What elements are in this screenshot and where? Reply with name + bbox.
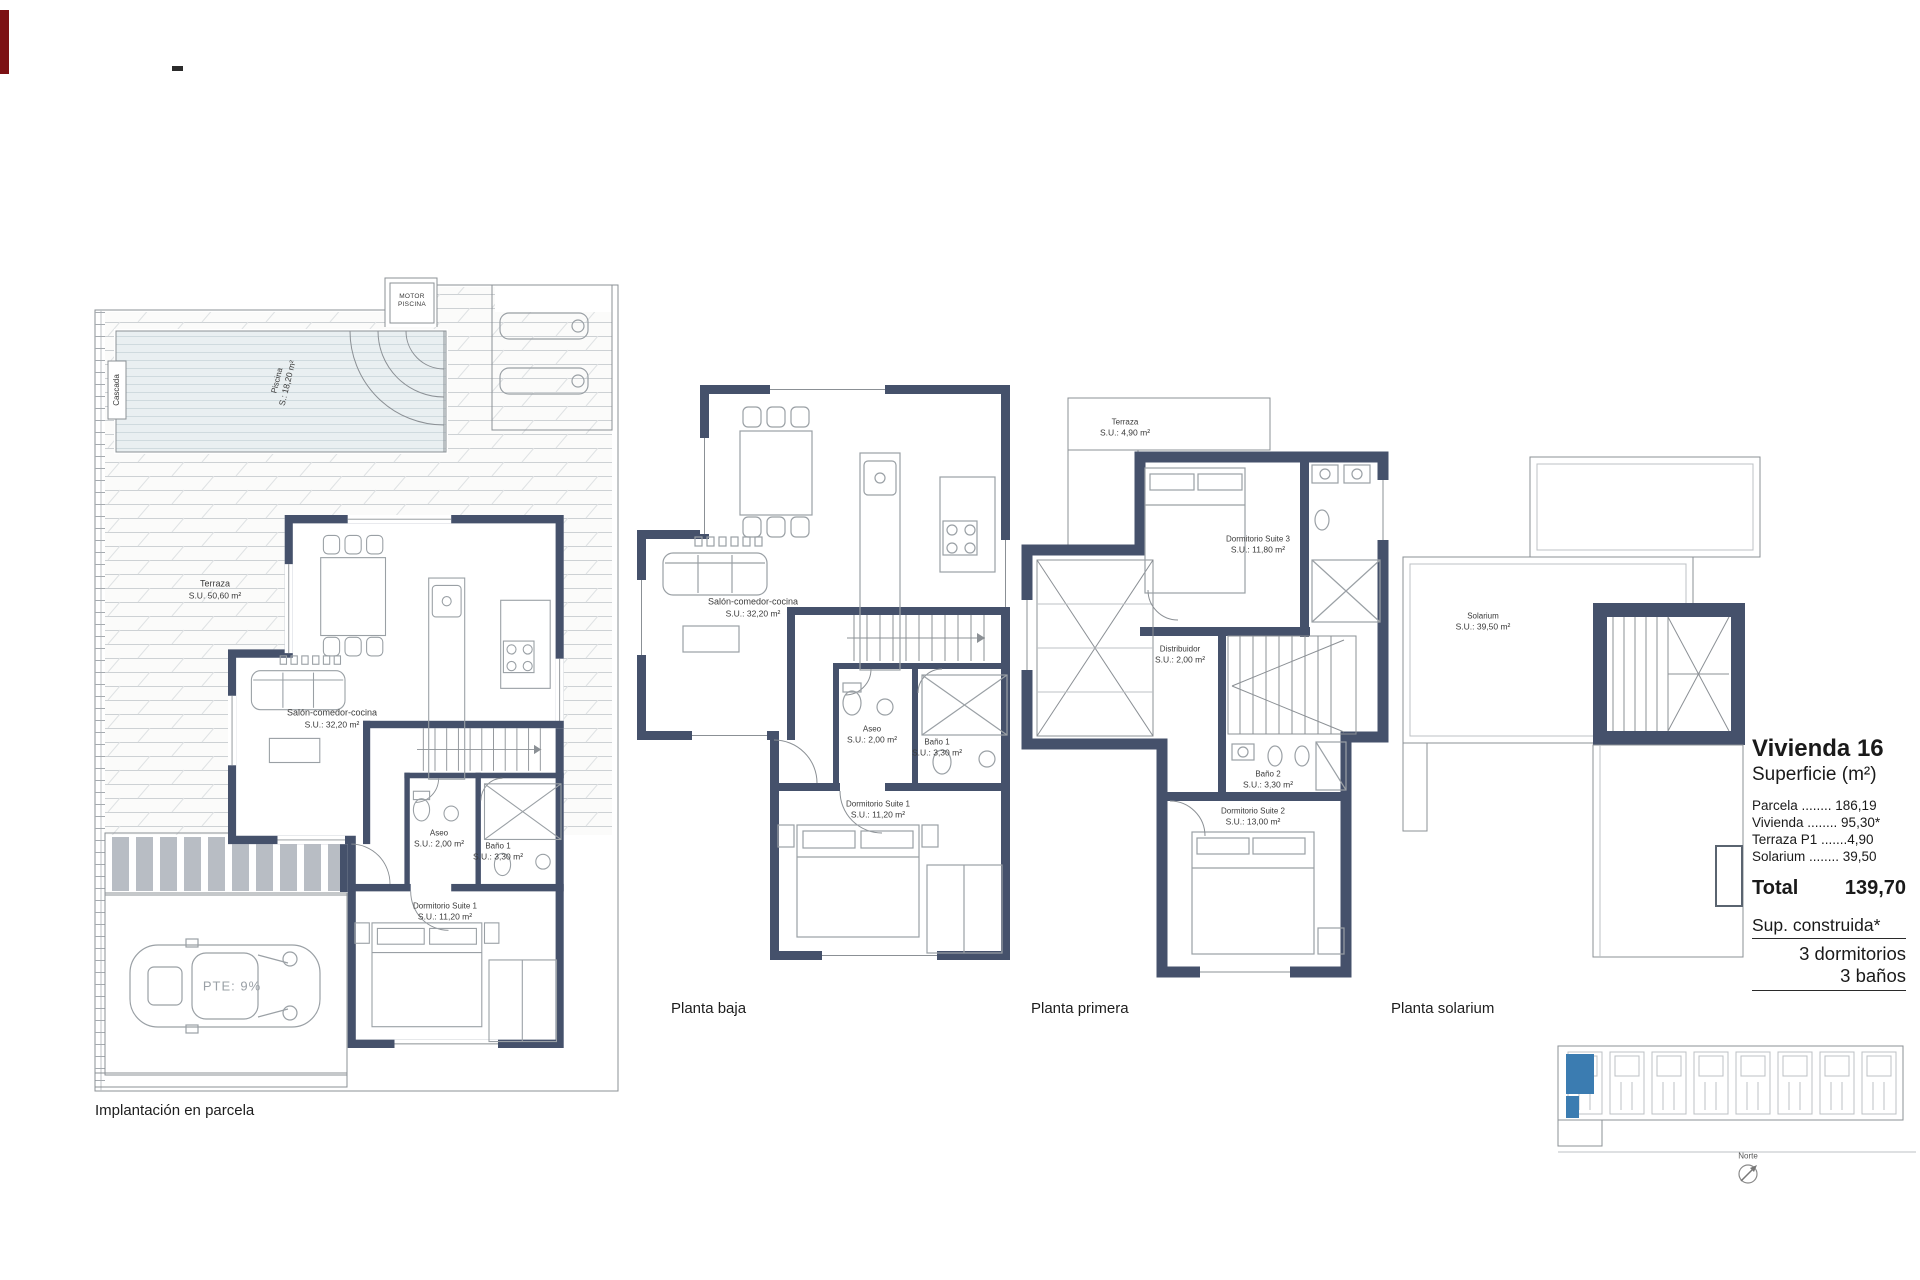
- room-name: MOTOR: [398, 293, 426, 301]
- room-area: S.U.: 32,20 m²: [708, 608, 798, 619]
- room-area: S.U. 50,60 m²: [189, 590, 241, 601]
- label-bano2: Baño 2 S.U.: 3,30 m²: [1243, 769, 1293, 790]
- label-cascada: Cascada: [112, 374, 122, 406]
- room-area: S.U.: 11,80 m²: [1226, 545, 1290, 556]
- room-name: Cascada: [112, 374, 122, 406]
- label-motor-piscina: MOTOR PISCINA: [398, 293, 426, 309]
- room-name: Distribuidor: [1155, 644, 1205, 654]
- caption-planta-baja: Planta baja: [671, 1000, 746, 1017]
- room-name: Aseo: [414, 828, 464, 838]
- floorplan-drawing: .w{fill:#45516b;stroke:none} .pw{fill:#f…: [0, 0, 1920, 1280]
- unit-subtitle: Superficie (m²): [1752, 764, 1906, 786]
- room-name: Salón-comedor-cocina: [287, 708, 377, 720]
- label-bano1-impl: Baño 1 S.U.: 3,30 m²: [473, 841, 523, 862]
- room-area: S.U.: 32,20 m²: [287, 719, 377, 730]
- room-area: S.U.: 2,00 m²: [1155, 655, 1205, 666]
- label-salon-impl: Salón-comedor-cocina S.U.: 32,20 m²: [287, 708, 377, 731]
- bathrooms-count: 3 baños: [1752, 965, 1906, 991]
- site-overview-strip: [1558, 1046, 1916, 1183]
- plan-planta-solarium: [1403, 457, 1760, 957]
- caption-planta-primera: Planta primera: [1031, 1000, 1129, 1017]
- surface-row-solarium: Solarium ........ 39,50: [1752, 848, 1906, 865]
- room-area: S.U.: 11,20 m²: [846, 810, 910, 821]
- room-name: Baño 2: [1243, 769, 1293, 779]
- north-compass-icon: [1739, 1165, 1757, 1183]
- room-area: S.U.: 2,00 m²: [847, 735, 897, 746]
- label-terraza-p1: Terraza S.U.: 4,90 m²: [1100, 417, 1150, 438]
- solarium-lower-terrace: [1593, 745, 1743, 957]
- label-aseo-impl: Aseo S.U.: 2,00 m²: [414, 828, 464, 849]
- room-name: PISCINA: [398, 301, 426, 309]
- surface-rows: Parcela ........ 186,19 Vivienda .......…: [1752, 797, 1906, 865]
- label-solarium: Solarium S.U.: 39,50 m²: [1456, 611, 1511, 632]
- highlighted-unit: [1566, 1054, 1594, 1094]
- room-name: Dormitorio Suite 1: [413, 901, 477, 911]
- room-area: S.U.: 4,90 m²: [1100, 428, 1150, 439]
- label-terraza-50: Terraza S.U. 50,60 m²: [189, 579, 241, 602]
- terraza-p1: [1068, 398, 1270, 450]
- room-area: S.U.: 39,50 m²: [1456, 622, 1511, 633]
- stairwell-solarium: [1593, 603, 1745, 745]
- room-name: Aseo: [847, 724, 897, 734]
- label-salon-pb: Salón-comedor-cocina S.U.: 32,20 m²: [708, 597, 798, 620]
- brochure-page: .w{fill:#45516b;stroke:none} .pw{fill:#f…: [0, 0, 1920, 1280]
- room-name: Terraza: [189, 579, 241, 591]
- room-name: Baño 1: [912, 737, 962, 747]
- unit-info-panel: Vivienda 16 Superficie (m²) Parcela ....…: [1752, 736, 1906, 991]
- caption-planta-solarium: Planta solarium: [1391, 1000, 1494, 1017]
- room-area: S.U.: 11,20 m²: [413, 912, 477, 923]
- label-dorm3: Dormitorio Suite 3 S.U.: 11,80 m²: [1226, 534, 1290, 555]
- parcel-fence: [95, 310, 105, 1091]
- label-distribuidor: Distribuidor S.U.: 2,00 m²: [1155, 644, 1205, 665]
- total-label: Total: [1752, 877, 1798, 900]
- total-value: 139,70: [1845, 877, 1906, 900]
- label-dorm1-impl: Dormitorio Suite 1 S.U.: 11,20 m²: [413, 901, 477, 922]
- surface-total: Total 139,70: [1752, 877, 1906, 900]
- caption-implantacion: Implantación en parcela: [95, 1102, 254, 1119]
- plan-planta-primera: [1021, 398, 1389, 978]
- room-area: S.U.: 3,30 m²: [912, 748, 962, 759]
- surface-row-vivienda: Vivienda ........ 95,30*: [1752, 814, 1906, 831]
- surface-row-terraza: Terraza P1 .......4,90: [1752, 831, 1906, 848]
- room-name: Terraza: [1100, 417, 1150, 427]
- room-name: Salón-comedor-cocina: [708, 597, 798, 609]
- plan-planta-baja: [637, 385, 1010, 960]
- room-name: Dormitorio Suite 1: [846, 799, 910, 809]
- room-name: Dormitorio Suite 3: [1226, 534, 1290, 544]
- house-ground-floor: [637, 385, 1010, 960]
- room-area: S.U.: 13,00 m²: [1221, 817, 1285, 828]
- surface-row-parcela: Parcela ........ 186,19: [1752, 797, 1906, 814]
- plan-implantacion: [95, 278, 618, 1091]
- label-dorm2: Dormitorio Suite 2 S.U.: 13,00 m²: [1221, 806, 1285, 827]
- room-area: S.U.: 2,00 m²: [414, 839, 464, 850]
- built-surface-note: Sup. construida*: [1752, 915, 1906, 939]
- label-bano1-pb: Baño 1 S.U.: 3,30 m²: [912, 737, 962, 758]
- room-area: S.U.: 3,30 m²: [473, 852, 523, 863]
- room-name: Dormitorio Suite 2: [1221, 806, 1285, 816]
- north-label: Norte: [1738, 1152, 1758, 1161]
- room-name: Solarium: [1456, 611, 1511, 621]
- room-area: S.U.: 3,30 m²: [1243, 780, 1293, 791]
- label-ramp-slope: PTE: 9%: [203, 979, 261, 994]
- room-name: Baño 1: [473, 841, 523, 851]
- unit-title: Vivienda 16: [1752, 736, 1906, 761]
- bedrooms-count: 3 dormitorios: [1752, 943, 1906, 965]
- label-aseo-pb: Aseo S.U.: 2,00 m²: [847, 724, 897, 745]
- label-dorm1-pb: Dormitorio Suite 1 S.U.: 11,20 m²: [846, 799, 910, 820]
